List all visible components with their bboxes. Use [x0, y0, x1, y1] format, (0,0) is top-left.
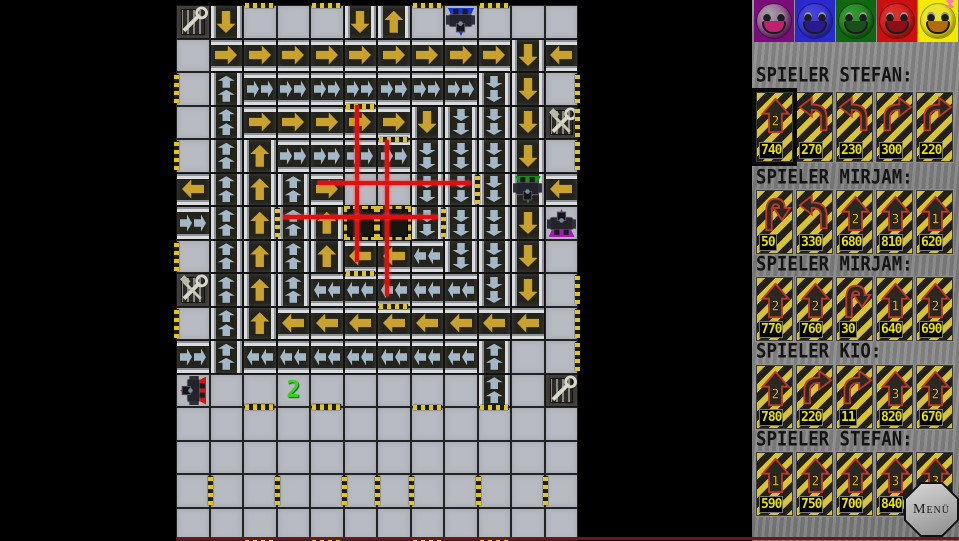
- conveyor-rail: [479, 40, 511, 45]
- wall-segment: [174, 309, 179, 338]
- conveyor-rail: [177, 200, 209, 205]
- program-card-move[interactable]: 2670: [916, 365, 953, 429]
- avatar-smiley-blue[interactable]: [795, 0, 835, 42]
- conveyor-right: [243, 39, 277, 73]
- conveyor-rail: [412, 301, 444, 306]
- conveyor-rail: [445, 301, 477, 306]
- yellow-arrow-icon: [483, 46, 505, 65]
- card-move-icon: 2: [797, 455, 834, 496]
- conveyor-rail: [311, 73, 343, 78]
- express-conveyor-right: [377, 139, 411, 173]
- menu-button[interactable]: Menü: [904, 482, 959, 537]
- conveyor-rail: [244, 100, 276, 105]
- conveyor-rail: [345, 301, 377, 306]
- conveyor-rail: [412, 40, 444, 45]
- conveyor-up: [243, 206, 277, 240]
- red-robot: [176, 374, 210, 408]
- card-priority-value: 740: [759, 142, 783, 159]
- conveyor-down: [210, 5, 244, 39]
- conveyor-rail: [445, 308, 477, 313]
- express-conveyor-down: [478, 273, 512, 307]
- express-conveyor-up: [210, 72, 244, 106]
- conveyor-rail: [512, 107, 517, 139]
- conveyor-rail: [278, 174, 283, 206]
- yellow-arrow-icon: [249, 46, 271, 65]
- express-conveyor-right: [310, 139, 344, 173]
- board-tile-floor: [310, 508, 344, 541]
- program-card-turn-right[interactable]: 220: [796, 365, 833, 429]
- program-card-move[interactable]: 2760: [796, 277, 833, 341]
- wall-segment: [575, 141, 580, 170]
- avatar-smiley-red[interactable]: [877, 0, 917, 42]
- smiley-face-icon: [839, 4, 873, 38]
- conveyor-rail: [479, 375, 484, 407]
- board-tile-floor: [411, 5, 445, 39]
- game-board: 2: [176, 5, 578, 541]
- express-conveyor-down: [411, 173, 445, 207]
- conveyor-rail: [244, 40, 276, 45]
- conveyor-rail: [479, 73, 484, 105]
- card-priority-value: 820: [879, 409, 903, 426]
- conveyor-rail: [311, 174, 343, 179]
- conveyor-rail: [237, 107, 242, 139]
- board-tile-floor: [411, 474, 445, 508]
- conveyor-rail: [378, 107, 410, 112]
- conveyor-rail: [244, 174, 249, 206]
- conveyor-rail: [278, 334, 310, 339]
- program-card-move[interactable]: 1590: [756, 452, 793, 516]
- program-card-move[interactable]: 2690: [916, 277, 953, 341]
- conveyor-rail: [338, 207, 343, 239]
- blue-express-arrows-icon: [314, 147, 340, 164]
- hammer-wrench-icon: [545, 106, 579, 140]
- conveyor-rail: [244, 368, 276, 373]
- conveyor-rail: [405, 6, 410, 38]
- conveyor-rail: [244, 133, 276, 138]
- conveyor-rail: [237, 308, 242, 340]
- conveyor-rail: [412, 140, 417, 172]
- conveyor-rail: [278, 241, 283, 273]
- program-card-move[interactable]: 2750: [796, 452, 833, 516]
- yellow-arrow-icon: [518, 111, 537, 133]
- conveyor-right: [310, 106, 344, 140]
- conveyor-left: [176, 173, 210, 207]
- conveyor-rail: [244, 207, 249, 239]
- conveyor-right: [277, 39, 311, 73]
- express-conveyor-left: [310, 340, 344, 374]
- board-tile-floor: [176, 72, 210, 106]
- yellow-arrow-icon: [550, 180, 572, 199]
- board-tile-floor: [277, 5, 311, 39]
- express-conveyor-down: [478, 72, 512, 106]
- express-conveyor-left: [344, 340, 378, 374]
- svg-text:2: 2: [772, 300, 780, 315]
- conveyor-rail: [244, 274, 249, 306]
- board-tile-floor: [545, 5, 579, 39]
- conveyor-down: [511, 106, 545, 140]
- conveyor-rail: [412, 267, 444, 272]
- conveyor-rail: [472, 241, 477, 273]
- blue-express-arrows-icon: [285, 277, 302, 303]
- board-tile-floor: [377, 173, 411, 207]
- yellow-arrow-icon: [518, 145, 537, 167]
- conveyor-rail: [412, 207, 417, 239]
- avatar-smiley-purple[interactable]: [754, 0, 794, 42]
- conveyor-rail: [546, 174, 578, 179]
- card-row: 27802201138202670: [752, 365, 959, 429]
- conveyor-rail: [378, 6, 383, 38]
- conveyor-rail: [311, 40, 343, 45]
- conveyor-rail: [479, 308, 511, 313]
- card-turn-left-icon: [837, 95, 874, 136]
- program-card-move[interactable]: 3820: [876, 365, 913, 429]
- player-panel: SPIELER STEFAN:2740270230300220SPIELER M…: [752, 0, 959, 541]
- conveyor-rail: [445, 174, 450, 206]
- board-tile-floor: [545, 407, 579, 441]
- conveyor-rail: [177, 234, 209, 239]
- wall-segment: [275, 476, 280, 505]
- program-card-move[interactable]: 3810: [876, 190, 913, 254]
- blue-express-arrows-icon: [486, 277, 503, 303]
- pit-tile: [344, 206, 378, 240]
- wall-segment: [543, 476, 548, 505]
- conveyor-rail: [345, 6, 350, 38]
- conveyor-rail: [278, 368, 310, 373]
- conveyor-rail: [345, 241, 377, 246]
- conveyor-right: [344, 106, 378, 140]
- conveyor-rail: [311, 140, 343, 145]
- yellow-arrow-icon: [550, 46, 572, 65]
- program-card-move[interactable]: 2700: [836, 452, 873, 516]
- card-turn-right-icon: [917, 95, 954, 136]
- express-conveyor-down: [444, 240, 478, 274]
- express-conveyor-up: [277, 240, 311, 274]
- repair-tile: [545, 374, 579, 408]
- express-conveyor-down: [478, 106, 512, 140]
- board-tile-floor: [210, 441, 244, 475]
- yellow-arrow-icon: [416, 46, 438, 65]
- express-conveyor-up: [478, 340, 512, 374]
- card-move-icon: 1: [757, 455, 794, 496]
- conveyor-left: [478, 307, 512, 341]
- conveyor-rail: [345, 140, 377, 145]
- board-tile-floor: [310, 5, 344, 39]
- program-card-move[interactable]: 1640: [876, 277, 913, 341]
- board-tile-floor: [310, 474, 344, 508]
- conveyor-rail: [505, 207, 510, 239]
- board-tile-floor: [243, 441, 277, 475]
- conveyor-rail: [445, 274, 477, 279]
- yellow-arrow-icon: [351, 11, 370, 33]
- program-card-turn-left[interactable]: 270: [796, 92, 833, 162]
- wall-segment: [275, 208, 280, 237]
- conveyor-rail: [378, 274, 410, 279]
- card-turn-right-icon: [837, 368, 874, 409]
- express-conveyor-left: [344, 273, 378, 307]
- board-tile-floor: [243, 5, 277, 39]
- yellow-arrow-icon: [517, 314, 539, 333]
- wall-segment: [174, 141, 179, 170]
- express-conveyor-up: [478, 374, 512, 408]
- board-tile-floor: [344, 441, 378, 475]
- svg-text:2: 2: [772, 115, 780, 130]
- board-tile-floor: [511, 407, 545, 441]
- conveyor-right: [377, 106, 411, 140]
- card-move-icon: 3: [877, 193, 914, 234]
- blue-express-arrows-icon: [452, 243, 469, 269]
- conveyor-rail: [278, 308, 310, 313]
- player-section-header: SPIELER MIRJAM:: [756, 253, 959, 276]
- express-conveyor-down: [478, 173, 512, 207]
- conveyor-rail: [338, 241, 343, 273]
- blue-robot: [444, 5, 478, 39]
- board-tile-floor: [511, 474, 545, 508]
- express-conveyor-down: [444, 106, 478, 140]
- board-tile-floor: [444, 474, 478, 508]
- wall-segment: [413, 405, 442, 410]
- blue-express-arrows-icon: [381, 80, 407, 97]
- blue-express-arrows-icon: [347, 348, 373, 365]
- conveyor-rail: [211, 241, 216, 273]
- conveyor-rail: [237, 241, 242, 273]
- express-conveyor-right: [377, 72, 411, 106]
- yellow-arrow-icon: [450, 314, 472, 333]
- conveyor-rail: [177, 207, 209, 212]
- board-tile-floor: [210, 374, 244, 408]
- yellow-arrow-icon: [349, 46, 371, 65]
- conveyor-rail: [512, 207, 517, 239]
- board-tile-floor: [478, 441, 512, 475]
- express-conveyor-left: [411, 340, 445, 374]
- svg-text:2: 2: [772, 388, 780, 403]
- express-conveyor-down: [478, 139, 512, 173]
- wall-segment: [575, 108, 580, 137]
- blue-express-arrows-icon: [285, 210, 302, 236]
- wall-segment: [346, 104, 375, 109]
- smiley-face-icon: [798, 4, 832, 38]
- conveyor-rail: [211, 207, 216, 239]
- conveyor-rail: [278, 133, 310, 138]
- blue-express-arrows-icon: [419, 143, 436, 169]
- conveyor-down: [511, 273, 545, 307]
- express-conveyor-down: [444, 139, 478, 173]
- conveyor-rail: [371, 6, 376, 38]
- wall-segment: [174, 242, 179, 271]
- wall-segment: [441, 208, 446, 237]
- conveyor-rail: [512, 73, 517, 105]
- board-tile-floor: [411, 508, 445, 541]
- laser-beam: [318, 181, 471, 185]
- conveyor-right: [444, 39, 478, 73]
- conveyor-rail: [211, 308, 216, 340]
- conveyor-rail: [445, 334, 477, 339]
- card-priority-value: 750: [799, 496, 823, 513]
- conveyor-rail: [211, 66, 243, 71]
- conveyor-rail: [445, 341, 477, 346]
- board-tile-floor: [478, 474, 512, 508]
- bottom-border-line: [176, 537, 959, 540]
- conveyor-rail: [505, 241, 510, 273]
- conveyor-rail: [539, 40, 544, 72]
- conveyor-left: [377, 240, 411, 274]
- wall-segment: [245, 3, 274, 8]
- blue-express-arrows-icon: [347, 281, 373, 298]
- conveyor-rail: [244, 341, 276, 346]
- conveyor-rail: [539, 241, 544, 273]
- conveyor-right: [310, 173, 344, 207]
- conveyor-rail: [479, 341, 484, 373]
- player-avatars: [754, 0, 958, 42]
- conveyor-rail: [278, 66, 310, 71]
- program-card-move[interactable]: 2740: [756, 92, 793, 162]
- conveyor-rail: [244, 308, 249, 340]
- program-card-move[interactable]: 2680: [836, 190, 873, 254]
- program-card-move[interactable]: 1620: [916, 190, 953, 254]
- conveyor-rail: [412, 308, 444, 313]
- conveyor-rail: [378, 100, 410, 105]
- card-move-icon: 2: [917, 280, 954, 321]
- card-move-icon: 3: [877, 368, 914, 409]
- program-card-turn-right[interactable]: 220: [916, 92, 953, 162]
- wall-segment: [342, 476, 347, 505]
- board-tile-floor: [377, 474, 411, 508]
- blue-express-arrows-icon: [414, 248, 440, 265]
- yellow-arrow-icon: [250, 279, 269, 301]
- conveyor-rail: [278, 107, 310, 112]
- card-priority-value: 330: [799, 234, 823, 251]
- express-conveyor-left: [377, 340, 411, 374]
- conveyor-rail: [311, 66, 343, 71]
- conveyor-rail: [271, 241, 276, 273]
- blue-express-arrows-icon: [280, 147, 306, 164]
- conveyor-rail: [311, 107, 343, 112]
- express-conveyor-right: [344, 72, 378, 106]
- conveyor-rail: [472, 207, 477, 239]
- board-tile-floor: [545, 474, 579, 508]
- card-priority-value: 670: [919, 409, 943, 426]
- conveyor-rail: [378, 341, 410, 346]
- card-move-icon: 2: [837, 193, 874, 234]
- blue-express-arrows-icon: [486, 143, 503, 169]
- conveyor-rail: [278, 73, 310, 78]
- program-card-move[interactable]: 2780: [756, 365, 793, 429]
- svg-text:2: 2: [812, 475, 820, 490]
- conveyor-rail: [479, 107, 484, 139]
- blue-express-arrows-icon: [247, 348, 273, 365]
- board-tile-floor: [344, 173, 378, 207]
- express-conveyor-up: [277, 206, 311, 240]
- wall-segment: [208, 476, 213, 505]
- conveyor-rail: [237, 207, 242, 239]
- card-priority-value: 590: [759, 496, 783, 513]
- wall-segment: [379, 137, 408, 142]
- conveyor-rail: [479, 241, 484, 273]
- board-tile-floor: [444, 407, 478, 441]
- yellow-arrow-icon: [182, 180, 204, 199]
- card-priority-value: 770: [759, 321, 783, 338]
- express-conveyor-up: [277, 173, 311, 207]
- conveyor-rail: [345, 167, 377, 172]
- blue-robot-sprite: [445, 6, 476, 37]
- board-tile-floor: [511, 508, 545, 541]
- card-priority-value: 50: [759, 234, 777, 251]
- conveyor-rail: [211, 341, 216, 373]
- green-robot-sprite: [512, 174, 543, 205]
- yellow-arrow-icon: [483, 314, 505, 333]
- program-card-turn-right[interactable]: 300: [876, 92, 913, 162]
- blue-express-arrows-icon: [280, 348, 306, 365]
- yellow-arrow-icon: [518, 44, 537, 66]
- program-card-turn-left[interactable]: 330: [796, 190, 833, 254]
- blue-express-arrows-icon: [452, 210, 469, 236]
- program-card-move[interactable]: 2770: [756, 277, 793, 341]
- yellow-arrow-icon: [383, 113, 405, 132]
- program-card-turn-right[interactable]: 11: [836, 365, 873, 429]
- yellow-arrow-icon: [217, 11, 236, 33]
- avatar-smiley-yellow[interactable]: [918, 0, 958, 42]
- conveyor-rail: [244, 73, 276, 78]
- svg-text:2: 2: [852, 475, 860, 490]
- program-card-uturn[interactable]: 30: [836, 277, 873, 341]
- yellow-arrow-icon: [250, 312, 269, 334]
- blue-express-arrows-icon: [314, 80, 340, 97]
- card-turn-right-icon: [877, 95, 914, 136]
- conveyor-rail: [512, 140, 517, 172]
- wall-segment: [375, 476, 380, 505]
- express-conveyor-left: [444, 273, 478, 307]
- blue-express-arrows-icon: [218, 210, 235, 236]
- board-tile-floor: [344, 407, 378, 441]
- program-card-turn-left[interactable]: 230: [836, 92, 873, 162]
- conveyor-right: [377, 39, 411, 73]
- board-tile-floor: [545, 72, 579, 106]
- yellow-arrow-icon: [383, 46, 405, 65]
- conveyor-rail: [271, 174, 276, 206]
- yellow-arrow-icon: [316, 314, 338, 333]
- green-robot: [511, 173, 545, 207]
- conveyor-rail: [278, 100, 310, 105]
- conveyor-rail: [539, 140, 544, 172]
- wall-segment: [312, 3, 341, 8]
- conveyor-rail: [378, 267, 410, 272]
- conveyor-rail: [378, 368, 410, 373]
- express-conveyor-right: [176, 206, 210, 240]
- repair-tile: [176, 5, 210, 39]
- conveyor-left: [344, 240, 378, 274]
- board-tile-floor: [478, 5, 512, 39]
- blue-express-arrows-icon: [247, 80, 273, 97]
- wall-segment: [379, 304, 408, 309]
- wall-segment: [346, 271, 375, 276]
- menu-button-face: Menü: [906, 484, 957, 535]
- board-number-marker: 2: [277, 374, 311, 408]
- conveyor-rail: [237, 174, 242, 206]
- avatar-smiley-green[interactable]: [836, 0, 876, 42]
- conveyor-rail: [278, 341, 310, 346]
- express-conveyor-up: [210, 173, 244, 207]
- card-move-icon: 2: [837, 455, 874, 496]
- blue-express-arrows-icon: [180, 214, 206, 231]
- conveyor-rail: [177, 341, 209, 346]
- conveyor-rail: [311, 100, 343, 105]
- blue-express-arrows-icon: [280, 80, 306, 97]
- conveyor-rail: [505, 341, 510, 373]
- smiley-face-icon: [921, 4, 955, 38]
- board-tile-floor: [277, 508, 311, 541]
- program-card-uturn[interactable]: 50: [756, 190, 793, 254]
- express-conveyor-up: [210, 139, 244, 173]
- conveyor-rail: [445, 140, 450, 172]
